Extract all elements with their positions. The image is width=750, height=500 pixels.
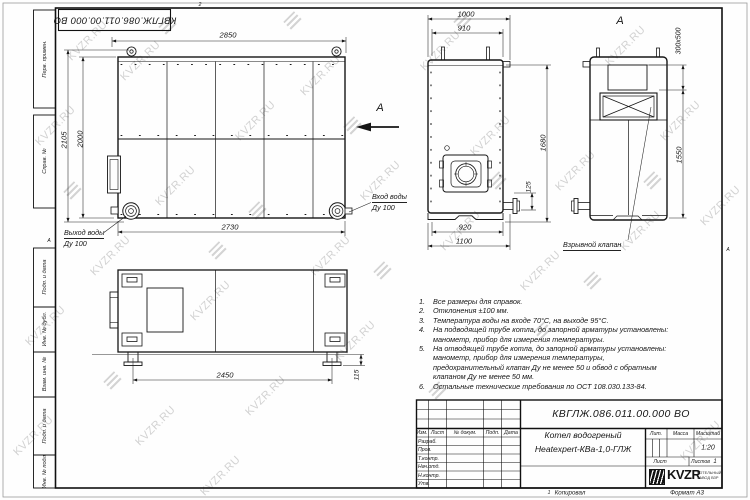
bottom-view-dimensions: [133, 355, 365, 385]
front-view: [108, 47, 353, 219]
title-row-nachotd: Нач.отд.: [418, 464, 440, 470]
title-doc-number: КВГЛЖ.086.011.00.000 ВО: [552, 408, 690, 420]
title-sheets-label: Листов: [691, 459, 710, 465]
title-col-data: Дата: [504, 430, 518, 436]
note-item: 4.На подводящей трубе котла, до запорной…: [419, 325, 724, 344]
dim-front-width-bottom: 2730: [222, 223, 239, 232]
label-water-outlet-dn: Ду 100: [64, 239, 87, 248]
note-text: Температура воды на входе 70°С, на выход…: [433, 316, 673, 325]
title-col-podp: Подп.: [486, 430, 500, 436]
kvzr-logo-icon: [649, 469, 665, 485]
note-number: 2.: [419, 306, 433, 315]
frame-label-perv-primen: Перв. примен.: [42, 40, 48, 77]
title-row-prov: Пров.: [418, 447, 432, 453]
note-text: Остальные технические требования по ОСТ …: [433, 382, 673, 391]
dim-side-width-top: 1000: [458, 9, 475, 18]
note-number: 6.: [419, 382, 433, 391]
frame-label-inv-dubl: Инв. № дубл.: [42, 312, 48, 346]
frame-label-vzam-inv: Взам. инв. №: [42, 357, 48, 392]
zone-mark-right: А: [726, 247, 729, 253]
front-view-dimensions: [64, 37, 371, 236]
dim-front-height-body: 2000: [75, 131, 84, 148]
dim-front-height-outer: 2105: [60, 132, 69, 149]
dim-side-width-shell-bottom: 920: [459, 222, 472, 231]
label-water-inlet: Вход воды: [372, 192, 407, 203]
dim-rear-valve-size: 300х500: [675, 28, 682, 55]
title-row-nkontr: Н.контр.: [418, 473, 440, 479]
dim-bottom-leg-height: 115: [354, 370, 361, 381]
stamp-doc-number: КВГЛЖ.086.011.00.000 ВО: [53, 15, 176, 26]
title-col-docnum: № докум.: [454, 430, 477, 436]
note-text: На подводящей трубе котла, до запорной а…: [433, 325, 673, 344]
drawing-sheet: KVZR.RU KVZR.RU KVZR.RU KVZR.RU KVZR.RU …: [0, 0, 750, 500]
technical-notes: 1.Все размеры для справок. 2.Отклонения …: [419, 297, 724, 391]
dim-side-width-bottom: 1100: [456, 236, 472, 245]
zone-mark-left: А: [47, 238, 50, 244]
title-product-name-line1: Котел водогреный: [545, 430, 622, 440]
note-item: 1.Все размеры для справок.: [419, 297, 724, 306]
title-lit-label: Лит.: [650, 431, 662, 437]
title-sheet-label: Лист: [653, 459, 666, 465]
title-col-list: Лист: [431, 430, 444, 436]
note-number: 1.: [419, 297, 433, 306]
section-arrow: [356, 123, 399, 132]
title-col-izm: Изм.: [416, 430, 427, 436]
note-text: Все размеры для справок.: [433, 297, 673, 306]
frame-label-sprav-no: Справ. №: [42, 148, 48, 173]
frame-label-podp-data-1: Подп. и дата: [42, 259, 48, 294]
note-item: 2.Отклонения ±100 мм.: [419, 306, 724, 315]
copied-label: Копировал: [555, 490, 586, 497]
frame-label-podp-data-2: Подп. и дата: [42, 408, 48, 443]
drawing-linework: [0, 0, 750, 500]
note-text: Отклонения ±100 мм.: [433, 306, 673, 315]
title-mass-label: Масса: [673, 431, 688, 437]
label-water-outlet: Выход воды: [64, 228, 104, 239]
label-water-inlet-dn: Ду 100: [372, 203, 395, 212]
note-item: 3.Температура воды на входе 70°С, на вых…: [419, 316, 724, 325]
dim-side-height: 1680: [539, 135, 548, 152]
dim-side-width-shell: 910: [458, 23, 471, 32]
note-number: 5.: [419, 344, 433, 382]
bottom-view: [92, 270, 364, 366]
note-item: 5.На отводящей трубе котла, до запорной …: [419, 344, 724, 382]
section-arrow-label: А: [376, 102, 383, 114]
title-row-razrab: Разраб.: [418, 439, 437, 445]
dim-side-flange-offset: 125: [525, 181, 532, 192]
dim-front-width-top: 2850: [220, 31, 237, 40]
note-text: На отводящей трубе котла, до запорной ар…: [433, 344, 673, 382]
title-scale-value: 1:20: [701, 444, 715, 451]
kvzr-logo-text: KVZR: [667, 467, 700, 482]
note-number: 3.: [419, 316, 433, 325]
title-sheets-value: 1: [713, 459, 716, 465]
dim-rear-height: 1550: [674, 147, 683, 164]
note-item: 6.Остальные технические требования по ОС…: [419, 382, 724, 391]
callout-explosion-valve: Взрывной клапан: [563, 240, 621, 251]
title-row-tkontr: Т.контр.: [418, 456, 439, 462]
format-label: Формат А3: [670, 490, 704, 497]
title-product-name-line2: Heatexpert-КВа-1,0-ГЛЖ: [535, 444, 631, 454]
title-scale-label: Масштаб: [696, 431, 720, 437]
title-row-utv: Утв.: [418, 481, 430, 487]
side-view: [428, 47, 520, 220]
zone-mark-top: 2: [199, 2, 202, 8]
note-number: 4.: [419, 325, 433, 344]
frame-label-inv-podl: Инв. № подл.: [42, 454, 48, 489]
zone-mark-bottom: 1: [548, 490, 551, 496]
rear-view-label: А: [616, 15, 623, 27]
sheet-frame: [3, 3, 747, 497]
rear-view: [571, 48, 667, 220]
kvzr-logo-subtext-line2: ЗАВОД ВЗР: [697, 476, 721, 481]
kvzr-logo-subtext: КОТЕЛЬНЫЙ ЗАВОД ВЗР: [697, 471, 721, 481]
dim-bottom-leg-span: 2450: [217, 370, 234, 379]
